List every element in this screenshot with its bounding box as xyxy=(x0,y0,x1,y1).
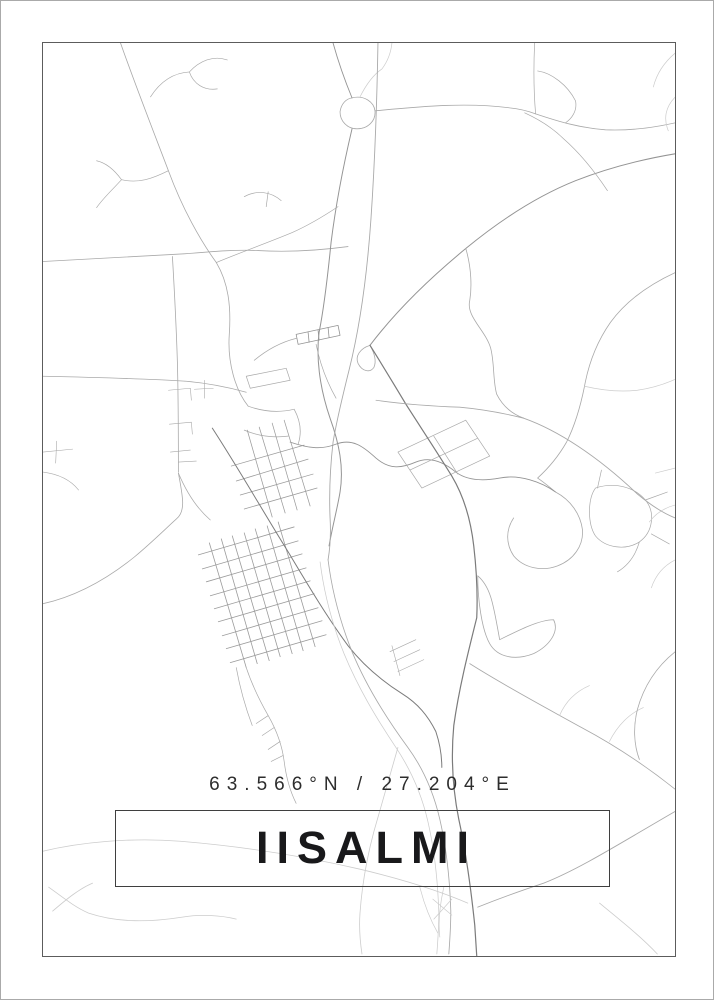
coordinates-label: 63.566°N / 27.204°E xyxy=(42,774,676,796)
poster-title: IISALMI xyxy=(248,825,477,870)
title-box: IISALMI xyxy=(115,810,610,887)
map-poster: 63.566°N / 27.204°E IISALMI xyxy=(0,0,714,1000)
